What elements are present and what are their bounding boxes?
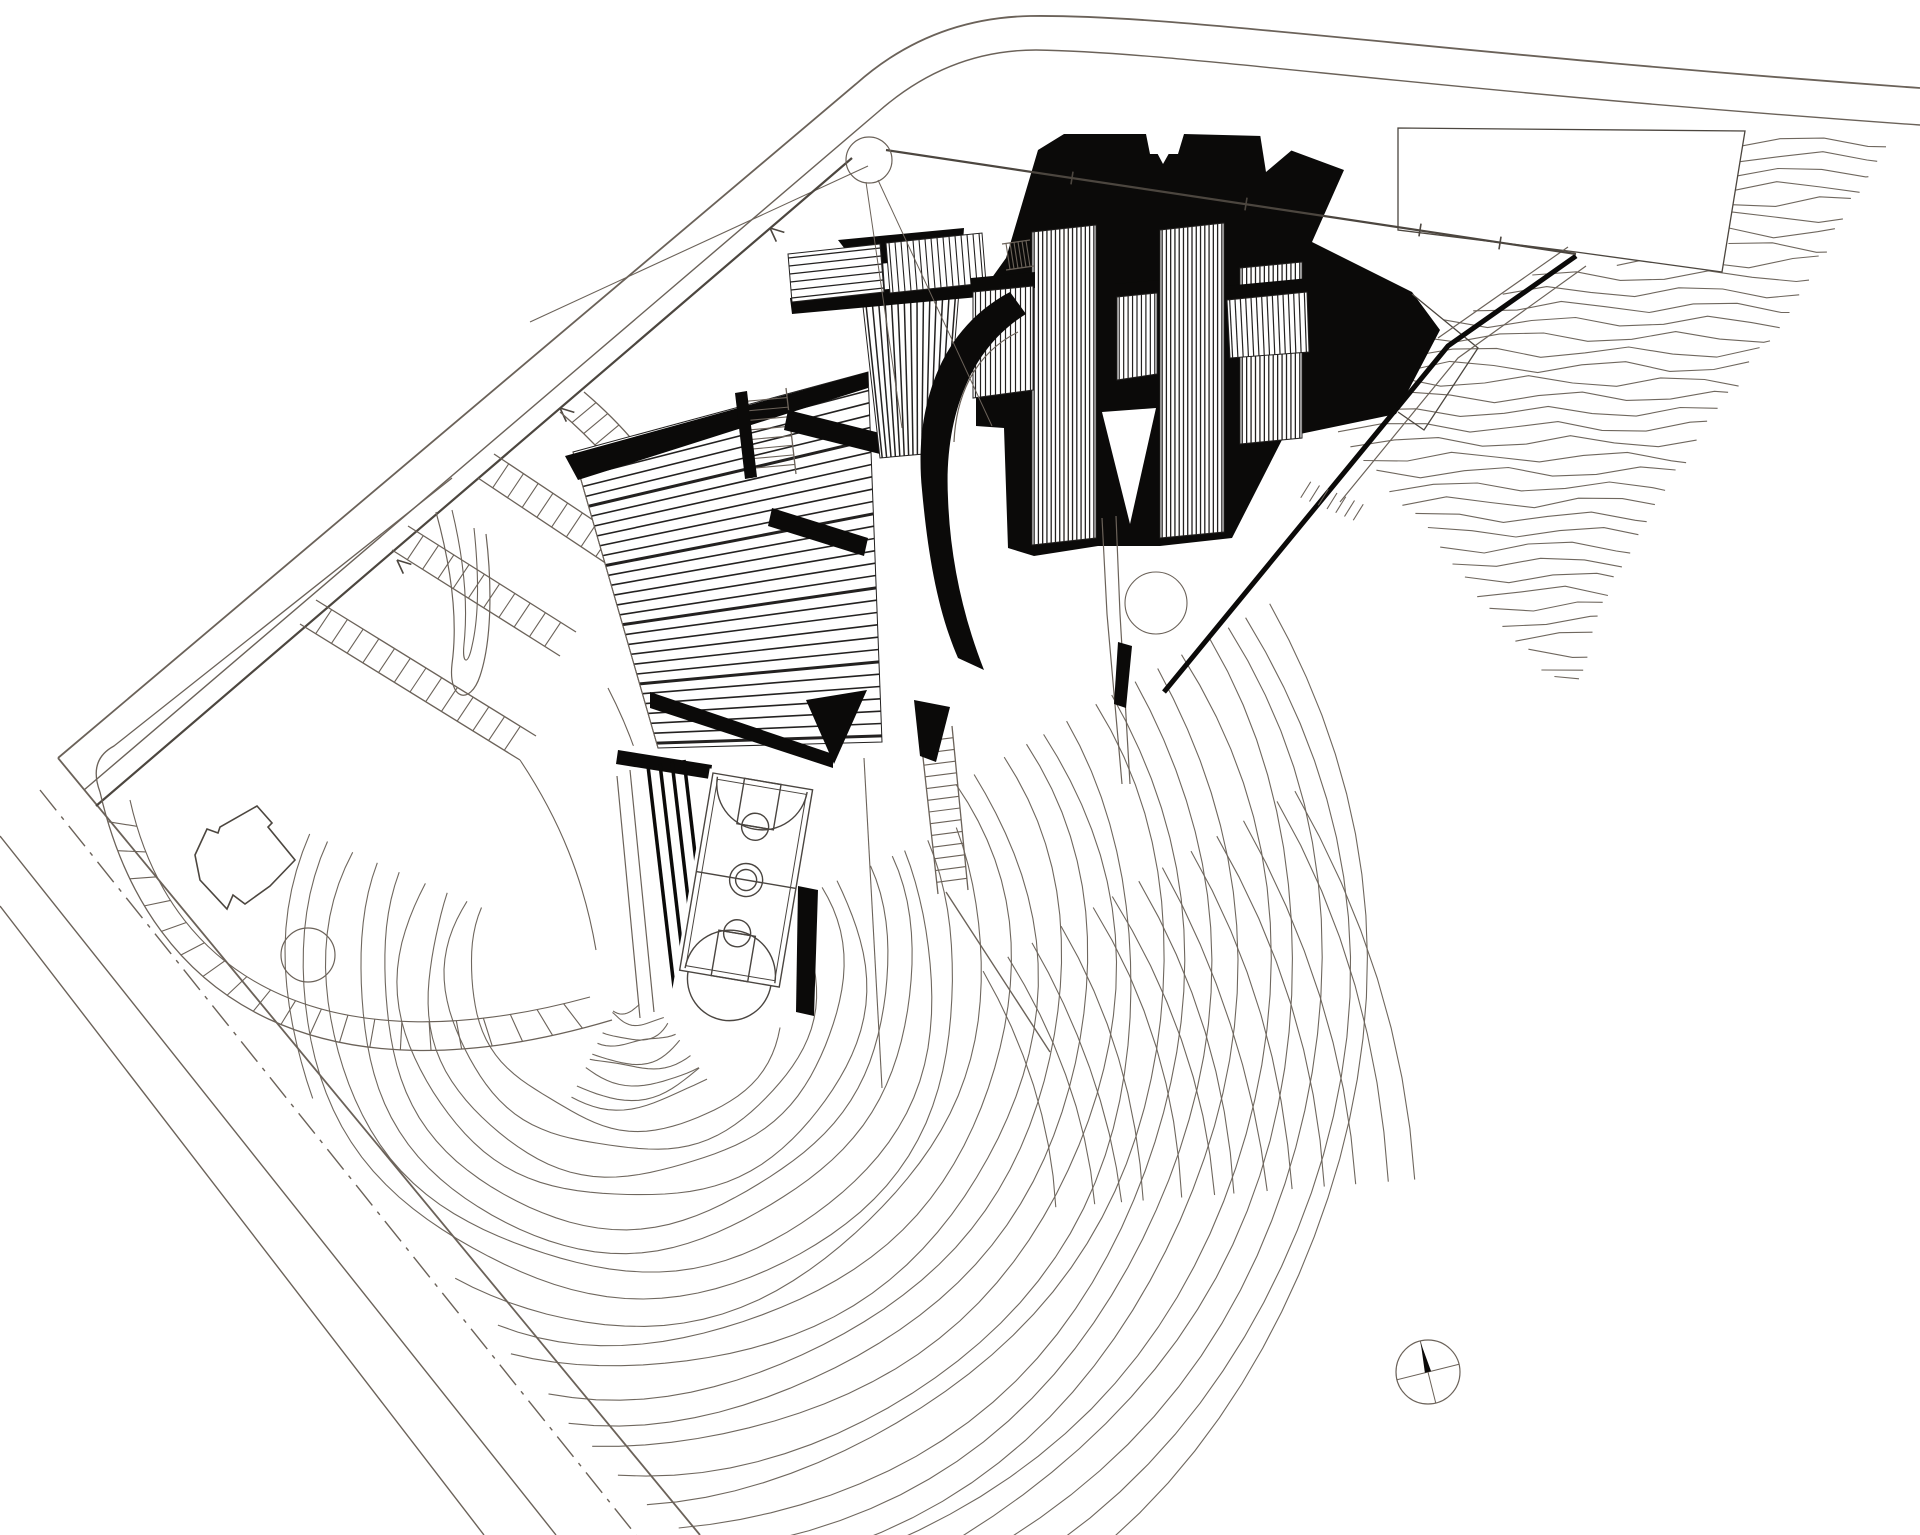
north-arrow-icon bbox=[1396, 1340, 1460, 1404]
contours-valley-fan bbox=[285, 604, 1415, 1535]
site-plan-page bbox=[0, 0, 1920, 1535]
lawn-and-house bbox=[96, 478, 612, 1050]
flat-pad bbox=[1398, 128, 1745, 272]
site-plan-drawing bbox=[0, 0, 1920, 1535]
terraced-roof bbox=[565, 372, 884, 768]
